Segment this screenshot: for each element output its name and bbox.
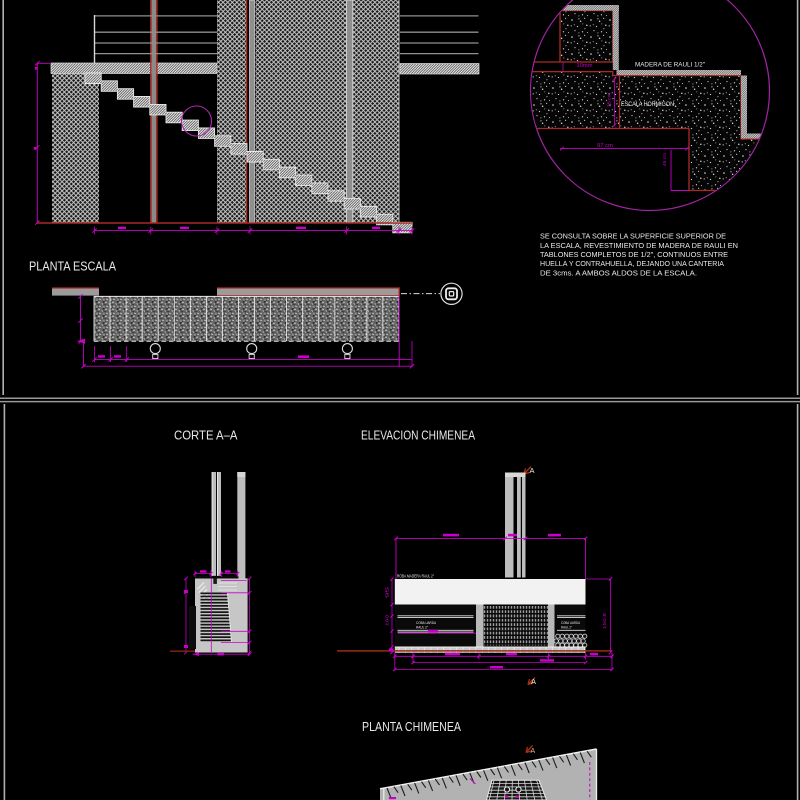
svg-text:97 cm: 97 cm (597, 143, 613, 149)
svg-text:MADERA DE RAULI 1/2": MADERA DE RAULI 1/2" (635, 62, 705, 69)
svg-text:TABLONES COMPLETOS DE 1/2", CO: TABLONES COMPLETOS DE 1/2", CONTINUOS EN… (540, 250, 728, 259)
svg-text:ESCALA HORMIGON: ESCALA HORMIGON (621, 101, 674, 108)
svg-text:A: A (531, 677, 536, 686)
svg-text:HUELLA Y CONTRAHUELLA, DEJANDO: HUELLA Y CONTRAHUELLA, DEJANDO UNA CANTE… (540, 259, 725, 268)
svg-text:ELEVACION CHIMENEA: ELEVACION CHIMENEA (361, 428, 475, 443)
svg-text:RAUL 2": RAUL 2" (561, 625, 573, 629)
svg-text:150.8: 150.8 (602, 612, 607, 629)
svg-text:LA ESCALA, REVESTIMIENTO DE MA: LA ESCALA, REVESTIMIENTO DE MADERA DE RA… (540, 241, 738, 250)
svg-text:COBA UARDA: COBA UARDA (561, 621, 581, 625)
svg-text:COBA UARDA: COBA UARDA (416, 621, 437, 625)
svg-text:DE 3cms. A AMBOS ALDOS DE LA E: DE 3cms. A AMBOS ALDOS DE LA ESCALA. (540, 268, 697, 277)
svg-text:95: 95 (385, 585, 390, 598)
svg-text:SE CONSULTA SOBRE LA SUPERFICI: SE CONSULTA SOBRE LA SUPERFICIE SUPERIOR… (540, 232, 726, 241)
svg-text:10mm: 10mm (577, 63, 593, 69)
svg-text:ROBA MADERA RAUL 2": ROBA MADERA RAUL 2" (397, 574, 434, 579)
svg-text:CORTE A–A: CORTE A–A (174, 428, 238, 443)
svg-text:35 cm: 35 cm (607, 93, 612, 107)
svg-text:PLANTA CHIMENEA: PLANTA CHIMENEA (362, 719, 461, 734)
svg-text:A: A (530, 466, 535, 475)
svg-text:160: 160 (385, 614, 390, 626)
svg-text:45 cm: 45 cm (662, 153, 667, 166)
svg-text:PLANTA ESCALA: PLANTA ESCALA (29, 260, 117, 274)
svg-text:RAUL 2": RAUL 2" (416, 625, 429, 629)
svg-text:A: A (531, 748, 536, 755)
